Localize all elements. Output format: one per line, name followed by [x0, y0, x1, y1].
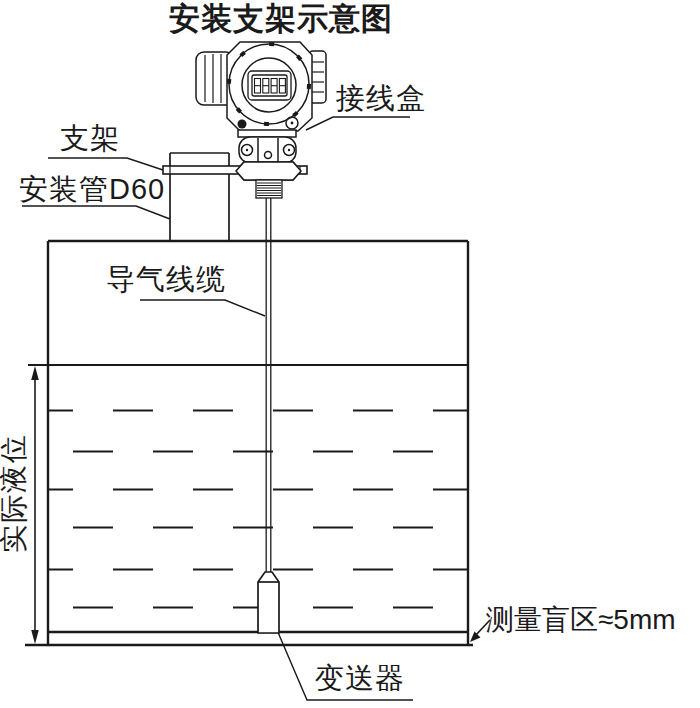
bracket-leader [48, 158, 166, 171]
installation-diagram: 安装支架示意图 接线盒 支架 安装管D60 导气线缆 实际液位 测量盲区≈5mm… [0, 0, 700, 708]
transmitter-label: 变送器 [315, 663, 405, 695]
hex-nut-front [236, 162, 301, 180]
diagram-title: 安装支架示意图 [159, 2, 403, 36]
threaded-stub [256, 180, 282, 198]
blind-zone-label: 测量盲区≈5mm [486, 605, 676, 636]
air-cable-label: 导气线缆 [106, 264, 226, 296]
bolt-dot-icon [291, 122, 294, 125]
mounting-pipe-label: 安装管D60 [19, 174, 165, 206]
tank-outline [25, 241, 473, 645]
actual-level-label: 实际液位 [0, 428, 29, 558]
air-guide-cable [266, 198, 271, 572]
junction-box-label: 接线盒 [336, 83, 426, 115]
junction-box-leader [306, 117, 410, 130]
mounting-pipe-leader [22, 206, 170, 219]
actual-level-dimension [31, 366, 39, 644]
transmitter-head [196, 42, 326, 180]
liquid-dashes [48, 411, 468, 608]
lcd-display [248, 71, 291, 100]
bolt-icon [238, 120, 247, 129]
arrow-up-icon [31, 366, 39, 380]
bracket-label: 支架 [60, 123, 120, 155]
head-yoke [238, 130, 296, 163]
arrow-down-left-icon [470, 632, 481, 643]
air-cable-leader [140, 300, 265, 316]
arrow-down-icon [31, 630, 39, 644]
submersible-probe [258, 572, 279, 633]
